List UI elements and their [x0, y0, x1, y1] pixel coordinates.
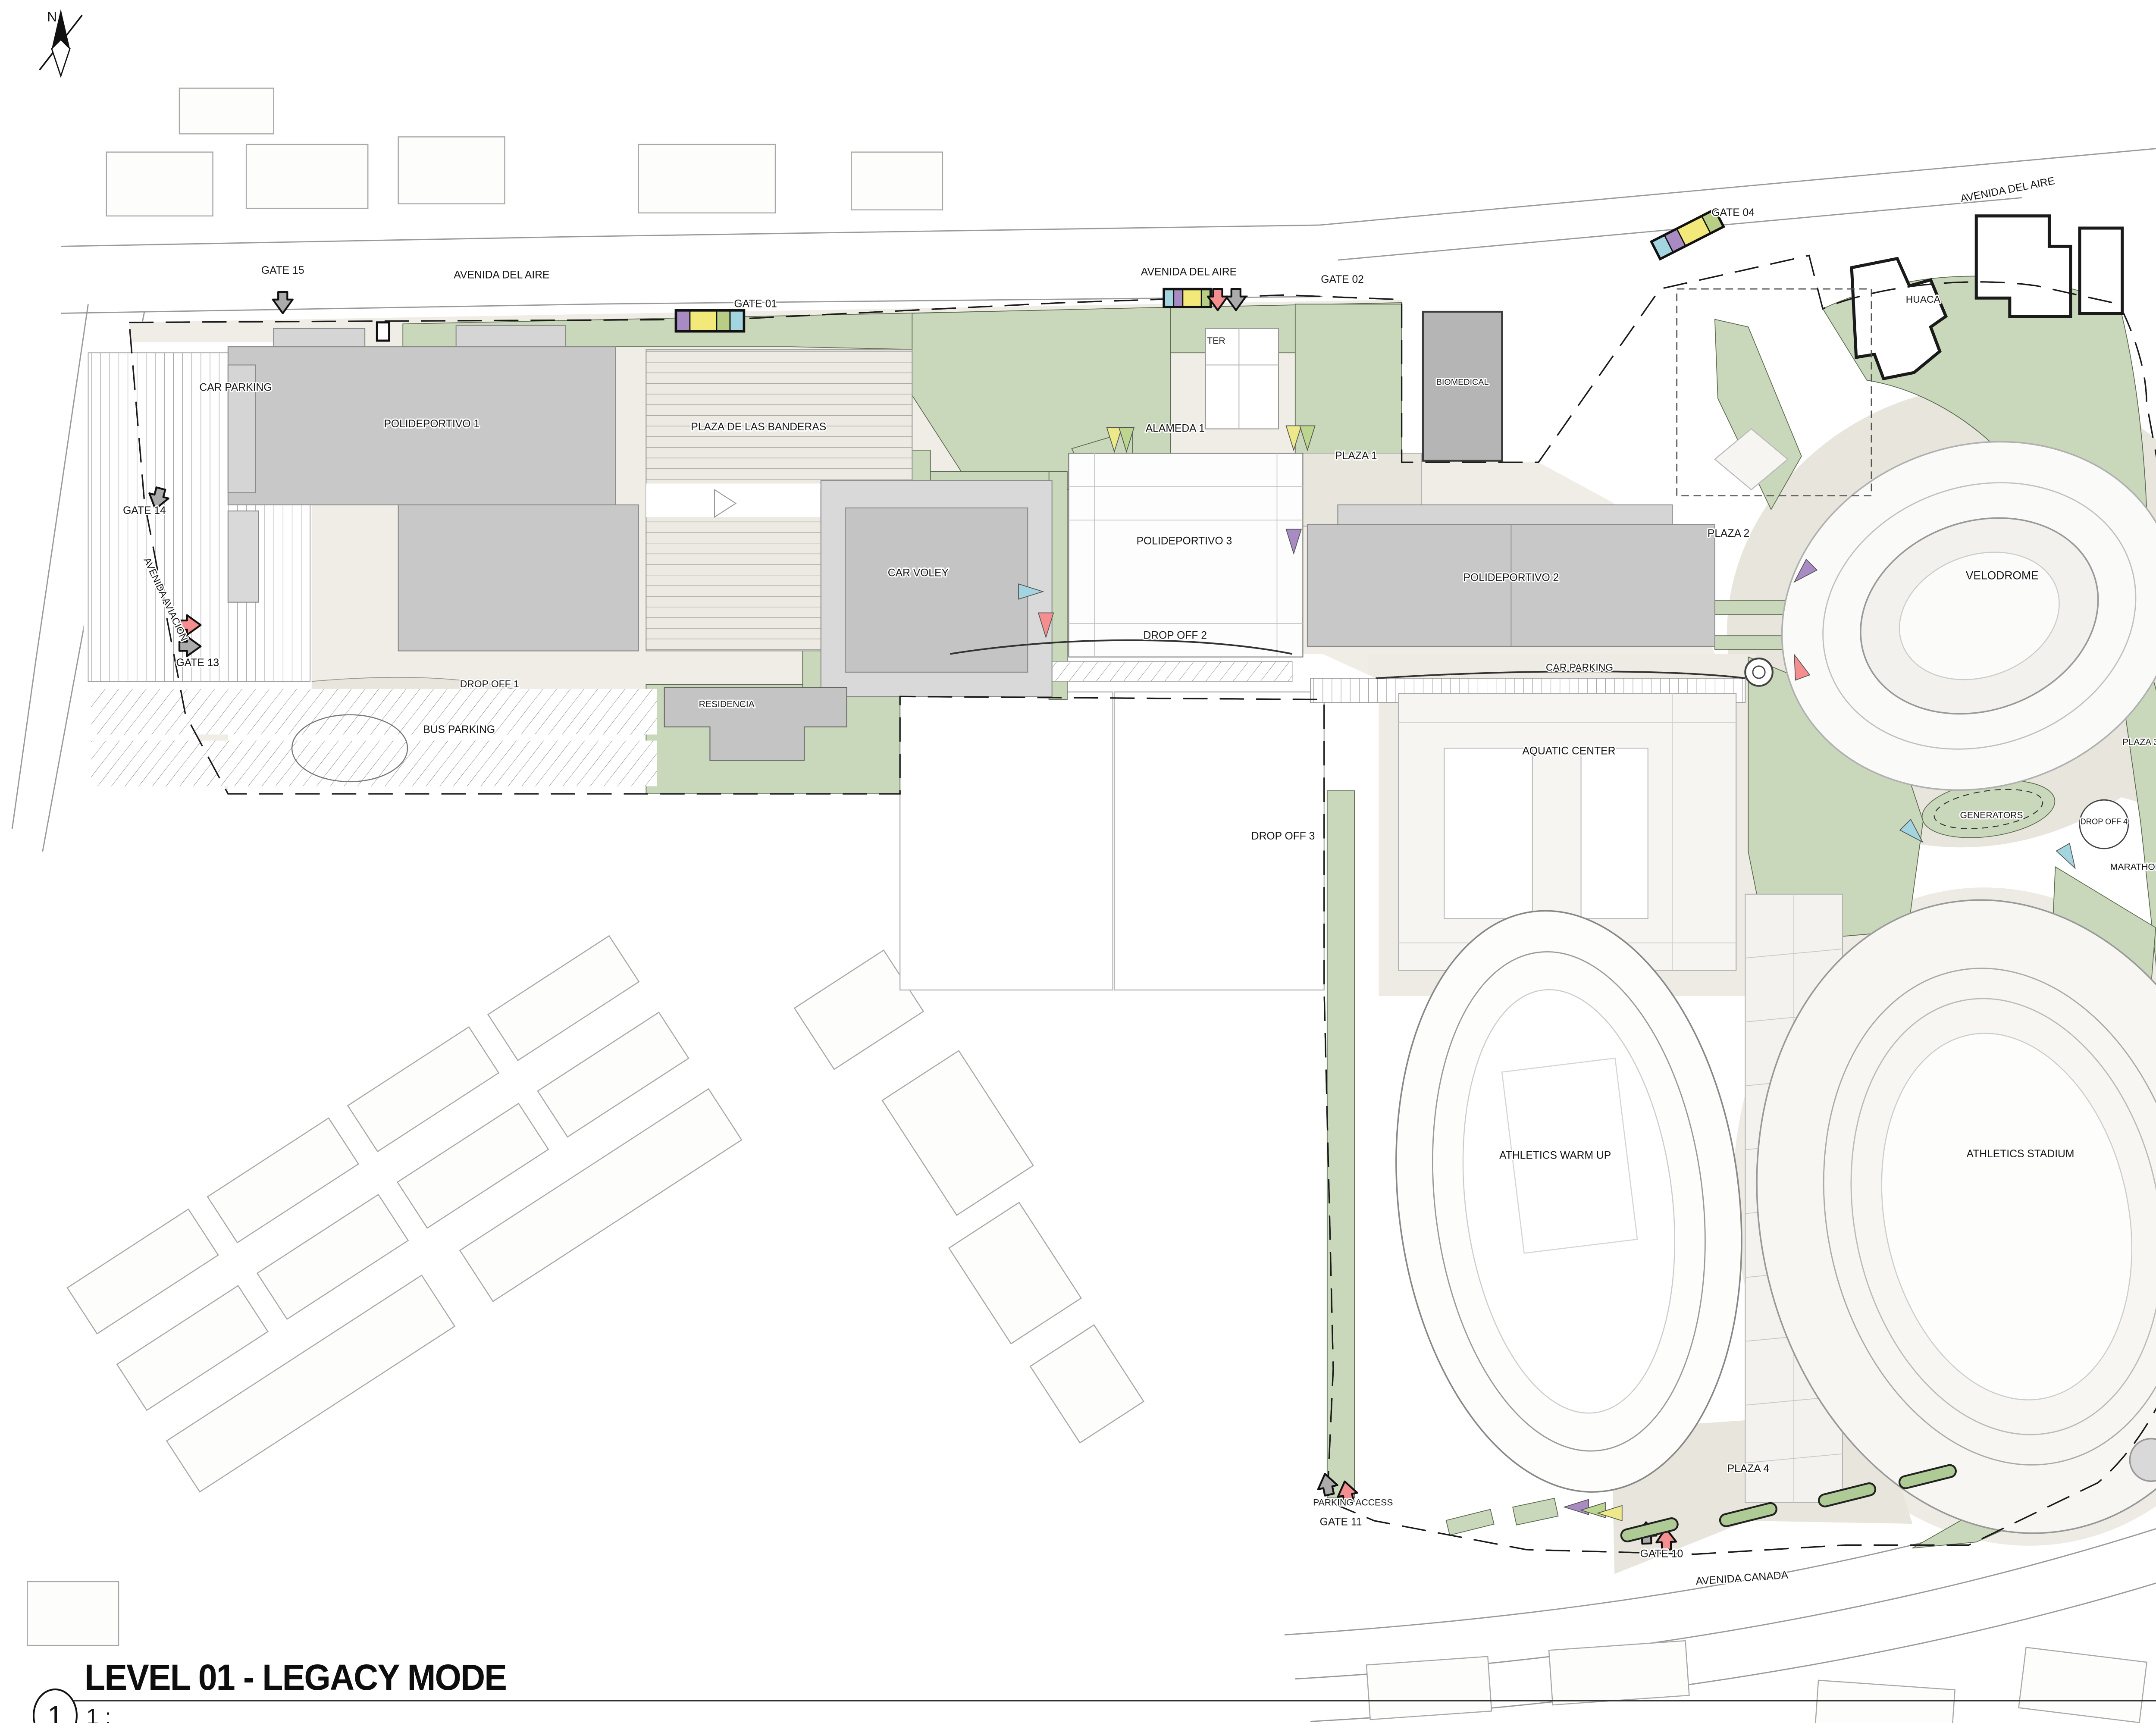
map-label-drop-off-3: DROP OFF 3: [1251, 830, 1315, 842]
map-label-aquatic-center: AQUATIC CENTER: [1522, 745, 1615, 757]
map-label-gate-02: GATE 02: [1321, 274, 1364, 285]
map-label-gate-01: GATE 01: [734, 298, 777, 310]
map-label-drop-off-2: DROP OFF 2: [1143, 630, 1207, 641]
map-label-avenida-del-aire: AVENIDA DEL AIRE: [1141, 266, 1237, 278]
map-label-bus-parking: BUS PARKING: [423, 724, 495, 736]
map-label-athletics-stadium: ATHLETICS STADIUM: [1967, 1148, 2075, 1160]
map-label-velodrome: VELODROME: [1966, 569, 2039, 582]
north-arrow-icon: N: [40, 9, 82, 76]
map-label-ter: TER: [1207, 336, 1225, 346]
map-label-plaza-4: PLAZA 4: [1727, 1463, 1769, 1475]
map-label-parking-access: PARKING ACCESS: [1313, 1498, 1393, 1508]
gate-02-marker: [1163, 288, 1212, 308]
map-label-car-parking: CAR PARKING: [199, 382, 272, 393]
map-label-polideportivo-1: POLIDEPORTIVO 1: [384, 418, 479, 430]
tree-icon: [1564, 1500, 1589, 1515]
map-label-plaza-3: PLAZA 3: [2122, 737, 2156, 747]
title-underline: [74, 1700, 2156, 1701]
site-plan-drawing: N GATE 15AVENIDA DEL AIREGATE 01AVENIDA …: [0, 0, 2156, 1723]
map-label-gate-14: GATE 14: [123, 505, 166, 517]
map-label-residencia: RESIDENCIA: [699, 699, 755, 709]
sheet-title: LEVEL 01 - LEGACY MODE: [85, 1657, 506, 1698]
map-label-athletics-warm-up: ATHLETICS WARM UP: [1499, 1150, 1611, 1162]
map-label-polideportivo-2: POLIDEPORTIVO 2: [1463, 572, 1559, 583]
sheet-number: 1: [47, 1700, 63, 1723]
map-label-car-voley: CAR VOLEY: [888, 567, 949, 579]
site-plan-sheet: N GATE 15AVENIDA DEL AIREGATE 01AVENIDA …: [0, 0, 2156, 1723]
map-label-plaza-de-las-banderas: PLAZA DE LAS BANDERAS: [691, 421, 826, 433]
map-label-polideportivo-3: POLIDEPORTIVO 3: [1137, 536, 1232, 547]
flag-blue-icon: [2056, 843, 2082, 872]
map-label-avenida-del-aire: AVENIDA DEL AIRE: [454, 269, 549, 281]
gate-15-booth: [377, 323, 389, 341]
map-label-gate-11: GATE 11: [1320, 1516, 1362, 1528]
map-label-gate-13: GATE 13: [176, 657, 219, 669]
map-label-biomedical: BIOMEDICAL: [1436, 377, 1489, 387]
map-label-plaza-1: PLAZA 1: [1335, 450, 1377, 462]
map-label-gate-10: GATE 10: [1640, 1548, 1683, 1560]
map-label-huaca: HUACA: [1906, 294, 1941, 305]
map-label-plaza-2: PLAZA 2: [1708, 528, 1749, 539]
map-label-alameda-1: ALAMEDA 1: [1146, 423, 1205, 435]
map-label-gate-04: GATE 04: [1711, 207, 1755, 219]
sheet-scale: 1 : 1200: [86, 1704, 136, 1723]
map-label-generators: GENERATORS: [1960, 810, 2023, 820]
map-label-car-parking: CAR PARKING: [1546, 661, 1613, 673]
map-label-gate-15: GATE 15: [261, 265, 304, 276]
map-label-marathon-access: MARATHON ACCESS: [2110, 862, 2156, 872]
north-label: N: [47, 9, 57, 24]
map-label-avenida-canada: AVENIDA CANADA: [1695, 1569, 1789, 1588]
map-label-drop-off-4: DROP OFF 4: [2081, 817, 2128, 826]
gate-01-marker: [675, 309, 746, 332]
map-label-avenida-del-aire: AVENIDA DEL AIRE: [1959, 175, 2056, 205]
map-label-drop-off-1: DROP OFF 1: [460, 678, 519, 689]
